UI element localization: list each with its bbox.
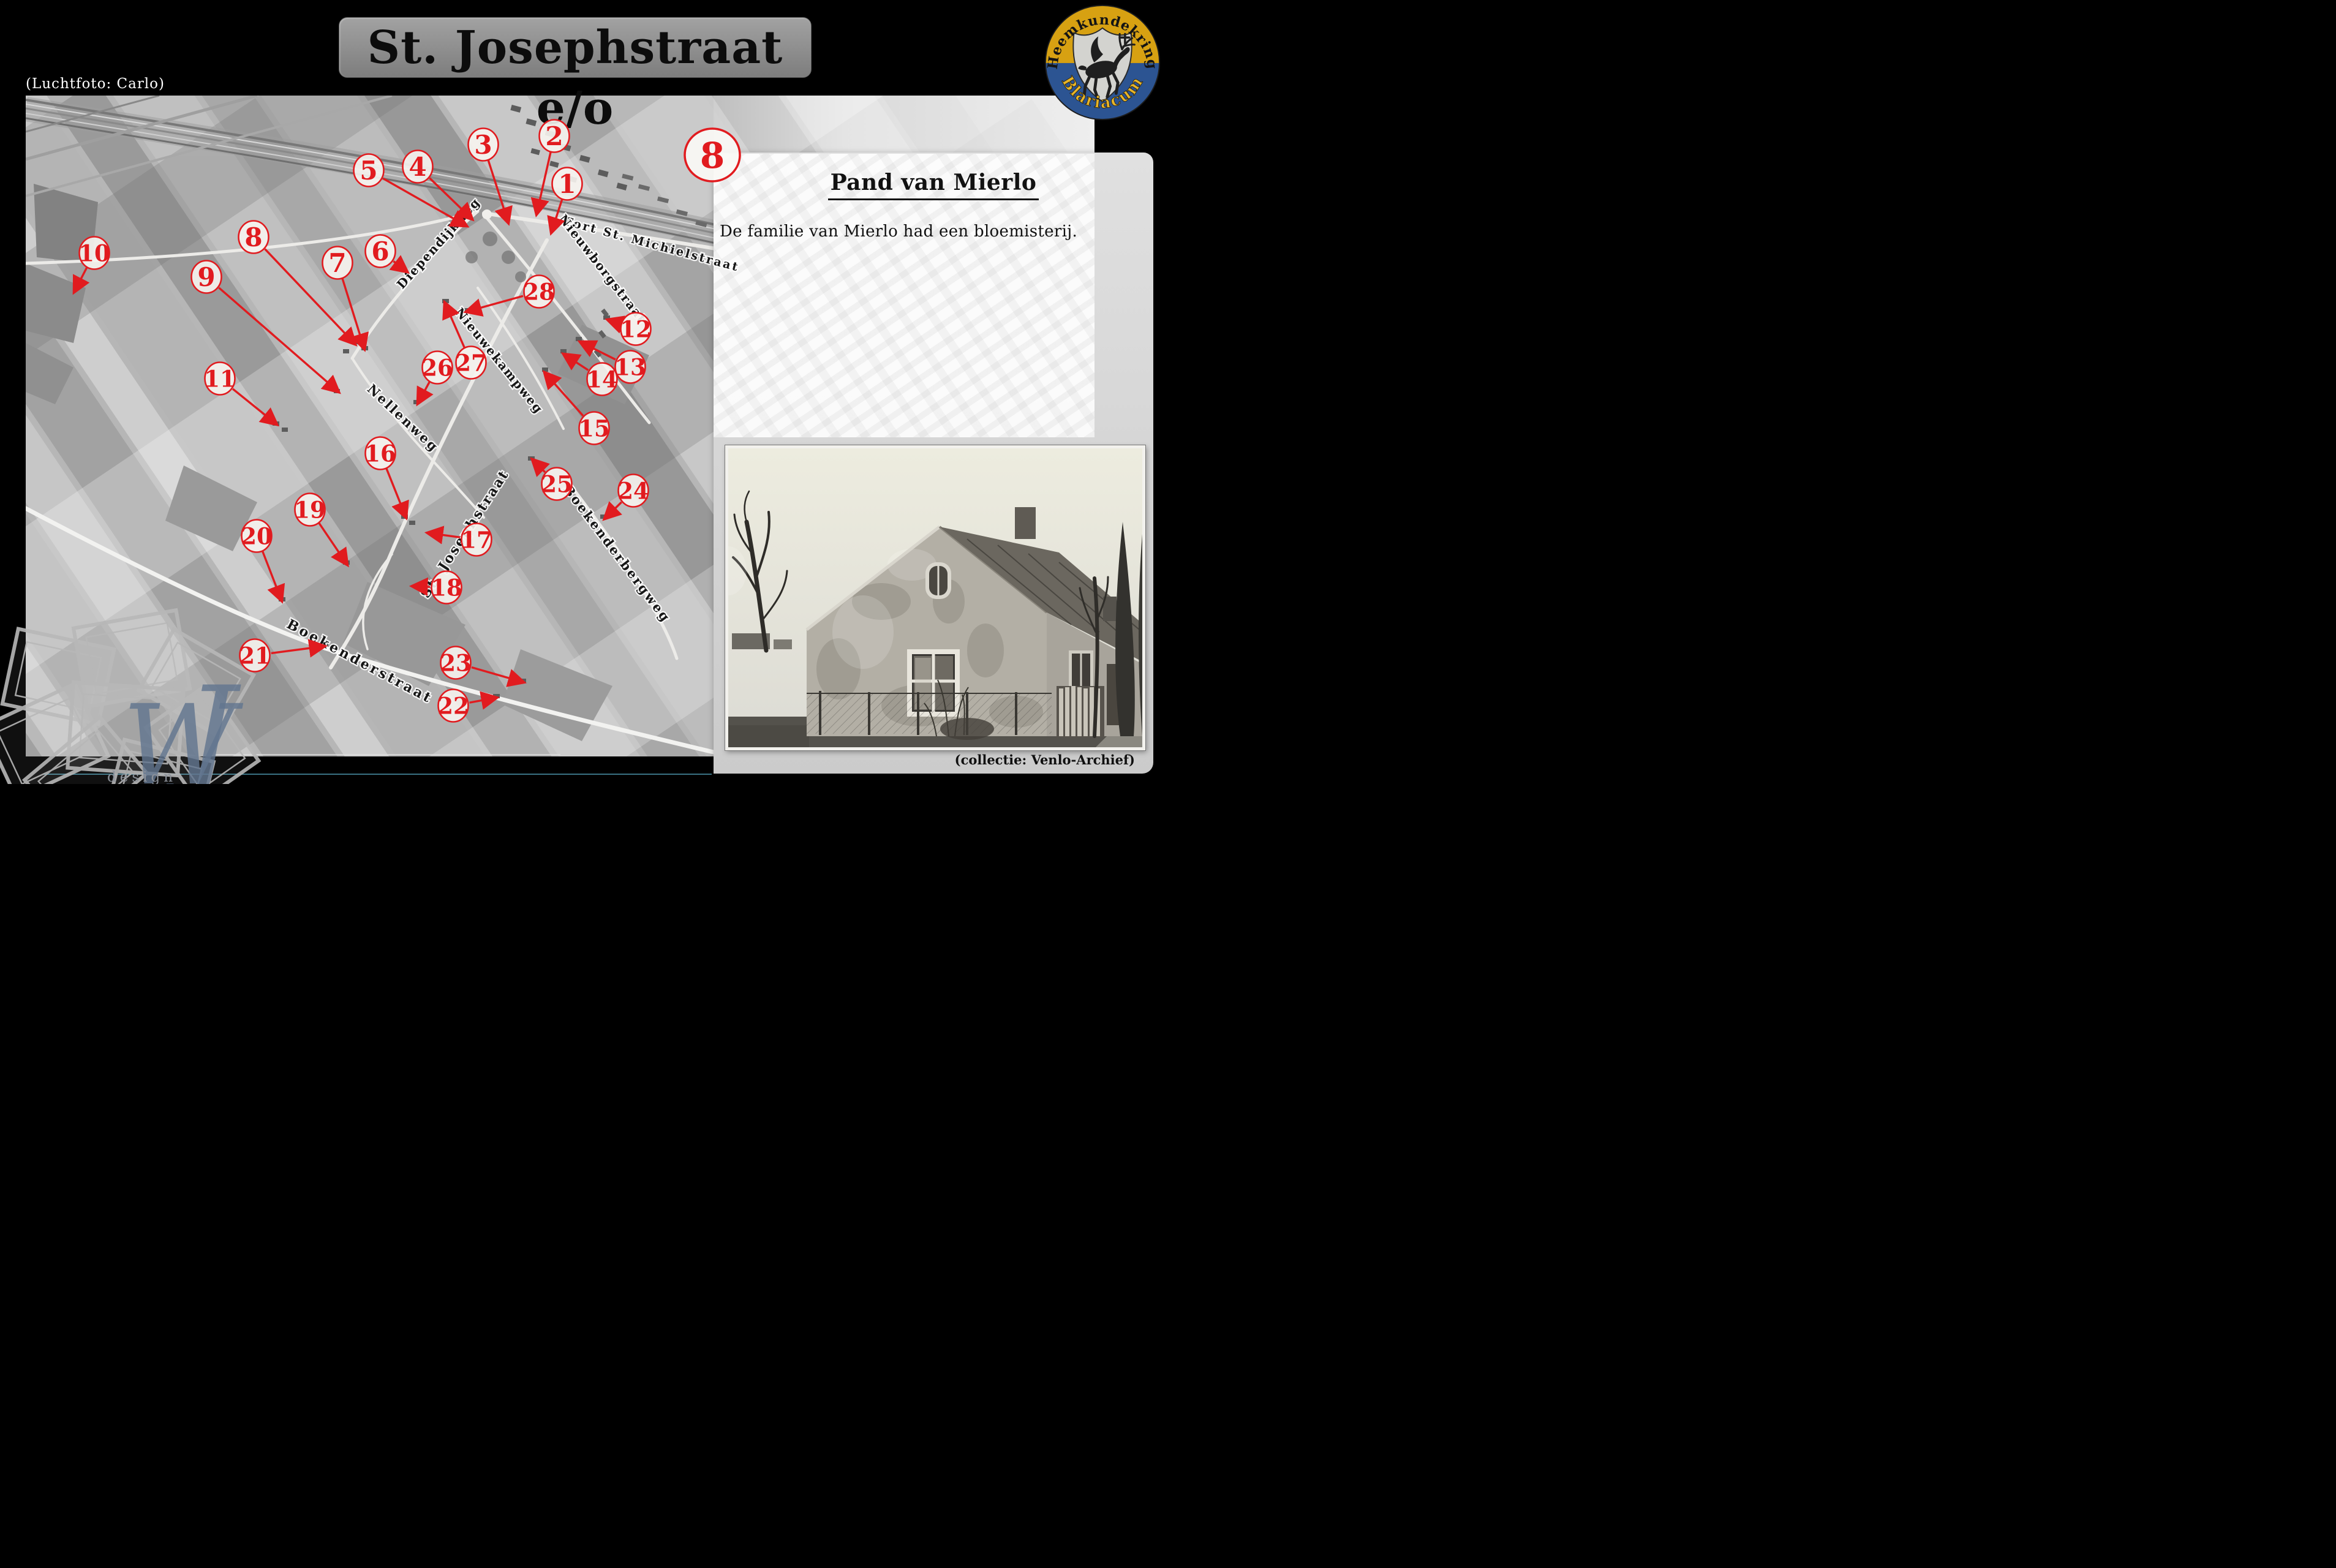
house-photo-image xyxy=(728,448,1142,747)
heemkundekring-logo: Heemkundekring Blariacum xyxy=(1043,3,1162,122)
photo-credit: (Luchtfoto: Carlo) xyxy=(26,76,165,92)
house-photo xyxy=(725,445,1145,750)
info-panel: Pand van Mierlo De familie van Mierlo ha… xyxy=(714,154,1095,437)
collection-credit: (collectie: Venlo-Archief) xyxy=(955,752,1135,767)
logo-emblem-icon: Heemkundekring Blariacum xyxy=(1043,3,1162,122)
title-bar: St. Josephstraat e/o xyxy=(339,17,812,78)
slide: Pand van Mierlo De familie van Mierlo ha… xyxy=(0,0,1168,784)
watermark-initial-j: J xyxy=(185,671,235,784)
page-title: St. Josephstraat e/o xyxy=(339,18,811,139)
info-panel-body: De familie van Mierlo had een bloemister… xyxy=(720,222,1088,241)
info-panel-title: Pand van Mierlo xyxy=(772,170,1095,200)
watermark-design-label: design xyxy=(107,769,176,784)
